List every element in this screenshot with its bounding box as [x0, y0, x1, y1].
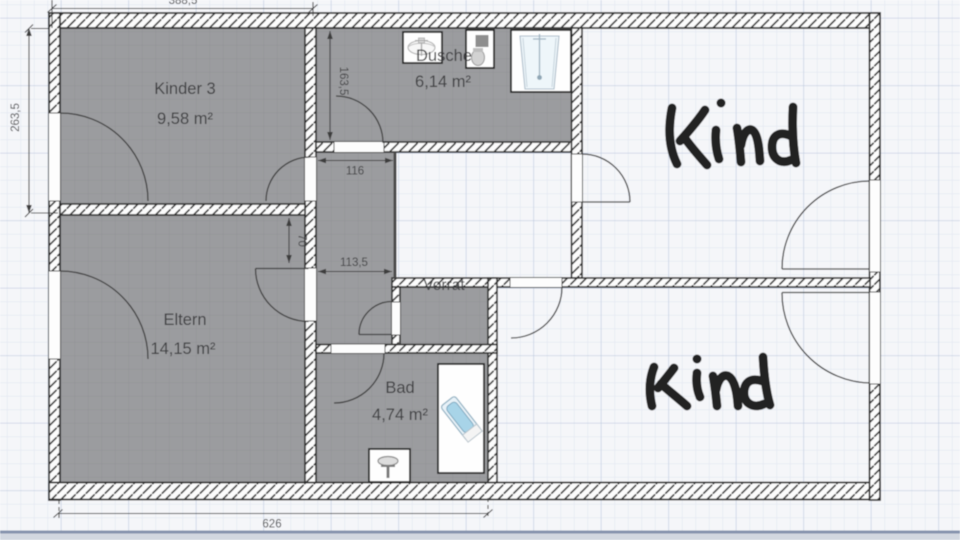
svg-text:388,5: 388,5: [169, 0, 198, 7]
svg-text:Bad: Bad: [385, 379, 414, 397]
svg-text:4,74 m²: 4,74 m²: [372, 406, 428, 424]
svg-text:6,14 m²: 6,14 m²: [415, 73, 471, 91]
svg-text:Kinder 3: Kinder 3: [154, 80, 215, 98]
svg-text:116: 116: [346, 166, 364, 178]
svg-text:Eltern: Eltern: [163, 311, 206, 329]
svg-text:163,5: 163,5: [337, 67, 349, 96]
svg-text:626: 626: [262, 519, 281, 531]
svg-text:113,5: 113,5: [340, 257, 368, 269]
svg-text:70: 70: [296, 234, 308, 247]
svg-text:263,5: 263,5: [10, 103, 22, 132]
svg-text:9,58 m²: 9,58 m²: [157, 110, 213, 128]
svg-text:14,15 m²: 14,15 m²: [150, 340, 216, 358]
svg-text:Vorrat: Vorrat: [423, 277, 465, 294]
svg-text:Dusche: Dusche: [416, 47, 472, 65]
